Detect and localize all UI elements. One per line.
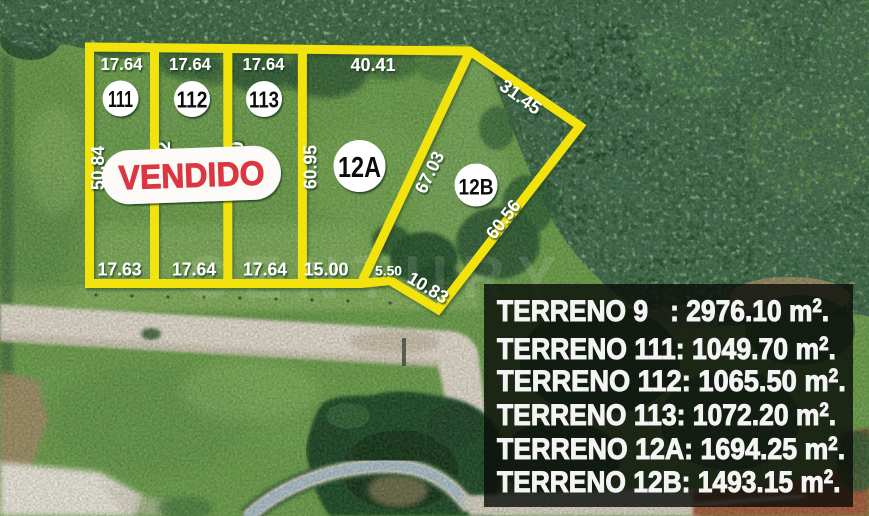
svg-text:17.64: 17.64 — [243, 54, 285, 74]
svg-text:111: 111 — [108, 86, 133, 112]
svg-text:17.63: 17.63 — [98, 260, 142, 280]
svg-text:40.41: 40.41 — [351, 55, 396, 75]
svg-text:17.64: 17.64 — [172, 260, 216, 280]
svg-text:5.50: 5.50 — [375, 264, 402, 279]
svg-text:15.00: 15.00 — [304, 260, 349, 280]
svg-text:17.64: 17.64 — [101, 54, 143, 74]
svg-text:17.64: 17.64 — [243, 260, 287, 280]
svg-text:VENDIDO: VENDIDO — [118, 154, 265, 197]
svg-text:113: 113 — [249, 87, 279, 113]
svg-text:12A: 12A — [338, 152, 381, 184]
svg-text:17.64: 17.64 — [169, 54, 211, 74]
svg-text:12B: 12B — [459, 175, 494, 200]
svg-text:112: 112 — [177, 87, 208, 113]
svg-text:60.95: 60.95 — [301, 145, 321, 189]
